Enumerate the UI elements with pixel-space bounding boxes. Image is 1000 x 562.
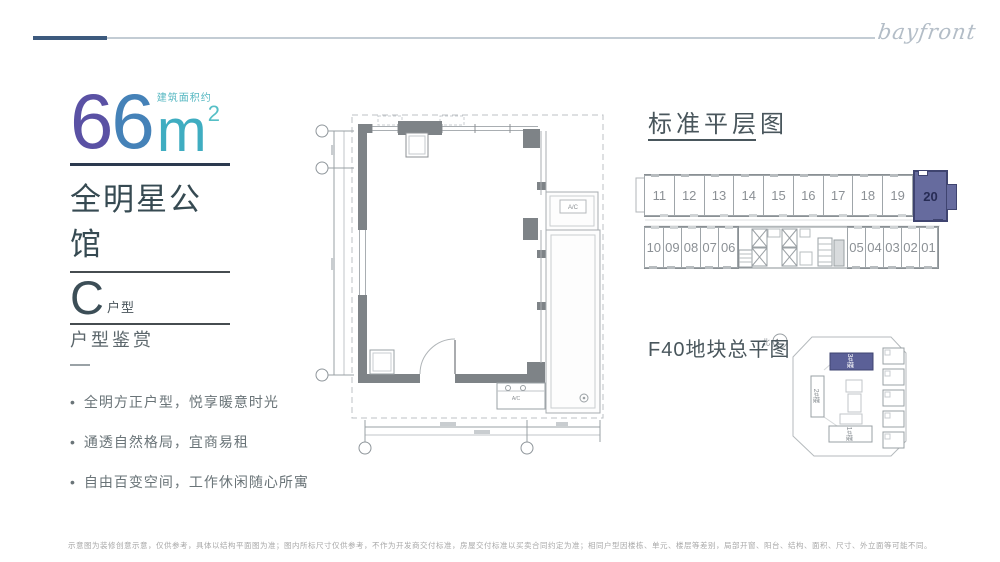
area-unit: m: [157, 97, 207, 164]
unit20-balcony: [946, 184, 957, 210]
appreciation-item: 全明方正户型，悦享暖意时光: [70, 392, 320, 412]
axis-grid-left: [316, 125, 354, 381]
unit-cell: 09: [663, 227, 683, 268]
unit-cell: 19: [882, 175, 913, 216]
area-digit: 6: [70, 86, 111, 156]
area-digit: 6: [111, 86, 152, 156]
area-superscript: 2: [208, 101, 220, 126]
appreciation-heading: 户型鉴赏: [70, 326, 320, 352]
floorplate-heading: 标准平层图: [648, 104, 788, 139]
floorplate-top-row: 111213141516171819: [645, 175, 913, 216]
floorplate-bottom-right-row: 0504030201: [848, 227, 938, 268]
unit-cell: 02: [901, 227, 920, 268]
unit-floorplan: A/C A/C: [316, 115, 603, 454]
floorplate-bottom-left-row: 1009080706: [645, 227, 738, 268]
building-3-label: 3#楼: [846, 354, 855, 369]
unit-cell: 05: [847, 227, 866, 268]
unit-summary: 6 6 建筑面积约 m2 全明星公馆 C 户型: [70, 86, 232, 325]
unit-cell: 04: [865, 227, 884, 268]
building-1-label: 1#楼: [845, 427, 854, 442]
unit-cell: 10: [644, 227, 664, 268]
unit-cell: 08: [681, 227, 701, 268]
unit-cell: 18: [852, 175, 883, 216]
appreciation-item: 通透自然格局，宜商易租: [70, 432, 320, 452]
unit-cell: 17: [823, 175, 854, 216]
divider: [70, 364, 90, 366]
floorplate-diagram: 111213141516171819 20 1009080706 0504030…: [645, 170, 957, 275]
unit-type: C 户型: [70, 273, 232, 323]
unit-cell-highlighted: 20: [913, 170, 948, 222]
estate-name: 全明星公馆: [70, 166, 232, 271]
appreciation-item: 自由百变空间，工作休闲随心所寓: [70, 472, 320, 492]
unit-cell: 16: [793, 175, 824, 216]
appreciation-list: 全明方正户型，悦享暖意时光 通透自然格局，宜商易租 自由百变空间，工作休闲随心所…: [70, 392, 320, 492]
area-figure: 6 6 建筑面积约 m2: [70, 86, 232, 156]
unit-cell: 01: [919, 227, 938, 268]
floorplate-heading-underline: [648, 139, 756, 141]
unit-type-suffix: 户型: [107, 297, 135, 316]
site-small-buildings: [883, 348, 904, 448]
header-rule: [33, 37, 875, 39]
unit-cell: 12: [674, 175, 705, 216]
unit-type-letter: C: [70, 276, 104, 321]
ac-label-upper: A/C: [568, 205, 579, 211]
unit-cell: 11: [644, 175, 675, 216]
appreciation-section: 户型鉴赏 全明方正户型，悦享暖意时光 通透自然格局，宜商易租 自由百变空间，工作…: [70, 326, 320, 512]
brand-logo: bayfront: [876, 20, 989, 44]
axis-grid-bottom: [359, 420, 600, 454]
ac-label-lower: A/C: [512, 396, 521, 402]
disclaimer-text: 示意图为装修创意示意，仅供参考，具体以结构平面图为准；图内所标尺寸仅供参考，不作…: [0, 540, 1000, 551]
page: A/C A/C: [0, 0, 1000, 562]
unit-cell: 06: [718, 227, 738, 268]
unit-cell: 13: [704, 175, 735, 216]
unit-cell: 14: [733, 175, 764, 216]
siteplan-heading: F40地块总平图: [648, 333, 790, 362]
building-2-label: 2#楼: [812, 389, 821, 404]
unit-cell: 03: [883, 227, 902, 268]
unit-cell: 07: [700, 227, 720, 268]
unit-cell: 15: [763, 175, 794, 216]
header-rule-accent: [33, 36, 107, 40]
